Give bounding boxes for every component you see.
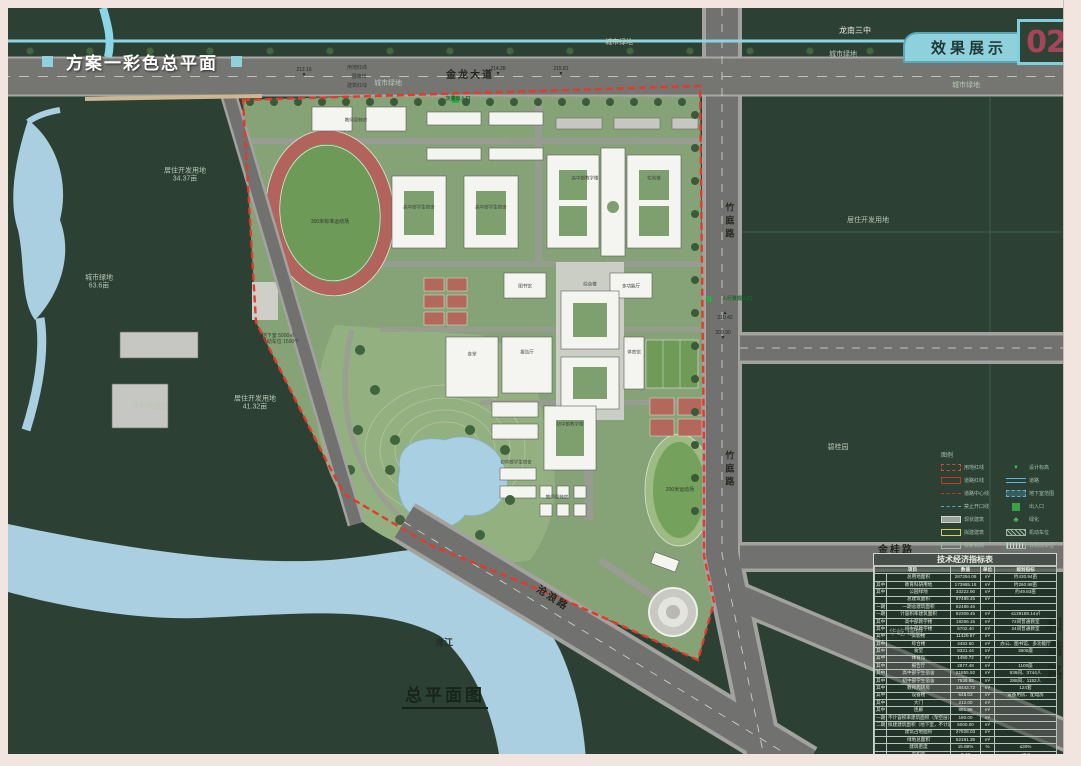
table-row: 其中初中部教学楼6702.40m²24间普通教室	[875, 626, 1057, 633]
legend-proposed-building-swatch-icon	[941, 529, 961, 536]
indicators-table-grid: 项目数值单位规划指标总用地面积287294.08m²约430.94亩其中教育科研…	[874, 566, 1057, 766]
legend-road: 道路	[1006, 474, 1065, 487]
legend-car-parking-swatch-icon	[1006, 529, 1026, 536]
legend-road-centerline-swatch-icon	[941, 493, 961, 494]
legend-basement-extent: 地下室范围	[1006, 487, 1065, 500]
legend-basement-extent-swatch-icon	[1006, 490, 1026, 497]
legend-existing-elevation-label: 现状标高	[964, 542, 984, 549]
pedestrian-entrance-marker	[706, 296, 712, 302]
table-row: 其中高中部学生宿舍21855.92m²936间、3744人	[875, 670, 1057, 677]
frame-top	[0, 0, 1081, 8]
legend-no-opening-line-swatch-icon	[941, 506, 961, 507]
frame-left	[0, 0, 8, 766]
table-row: 建筑密度15.88%%≤30%	[875, 744, 1057, 751]
table-row: 其中设备楼548.03m²设备用房、配电房	[875, 692, 1057, 699]
legend-design-elevation-label: 设计标高	[1029, 464, 1049, 471]
table-row: 其中连廊861.98m²	[875, 707, 1057, 714]
entrance-plaza	[649, 588, 697, 636]
legend-existing-building: 现状建筑	[941, 513, 1000, 526]
indicators-table-title: 技术经济指标表	[874, 554, 1056, 566]
sheet-title-bar: 方案一彩色总平面	[42, 49, 242, 74]
effect-display-tab: 效果展示	[903, 32, 1033, 63]
frame-right	[1063, 0, 1081, 766]
table-row: 一期不计容积率建筑面积（架空层）180.00m²	[875, 714, 1057, 721]
table-row: 其中教师周转房18443.72m²124套	[875, 685, 1057, 692]
table-row: 其中大门212.00m²	[875, 700, 1057, 707]
legend-road-label: 道路	[1029, 477, 1039, 484]
table-row: 一期计容积率建筑面积82309.45m²≤139188.14㎡	[875, 611, 1057, 618]
legend-proposed-building: 拟建建筑	[941, 526, 1000, 539]
legend-entrance: 出入口	[1006, 500, 1065, 513]
table-row: 其中公园绿地33222.90m²约49.83亩	[875, 589, 1057, 596]
plan-caption: 总平面图	[402, 681, 488, 709]
table-row: 建筑占地面积27628.03m²	[875, 729, 1057, 736]
legend-greening-swatch-icon	[1006, 516, 1026, 523]
legend-road-swatch-icon	[1006, 478, 1026, 483]
spine-garden	[607, 201, 619, 213]
legend-existing-building-swatch-icon	[941, 516, 961, 523]
legend-column-right: 设计标高道路地下室范围出入口绿化机动车位非机动车位	[1006, 461, 1065, 552]
indicators-table: 技术经济指标表 项目数值单位规划指标总用地面积287294.08m²约430.9…	[873, 553, 1057, 766]
table-row: 其中综合楼4482.60m²办公、图书馆、多功能厅	[875, 640, 1057, 647]
legend-existing-elevation: 现状标高	[941, 539, 1000, 552]
tab-label: 效果展示	[931, 37, 1007, 58]
legend-site-redline-swatch-icon	[941, 464, 961, 471]
legend-entrance-label: 出入口	[1029, 503, 1044, 510]
table-row: 其中教育科研用地173985.18m²约260.98亩	[875, 581, 1057, 588]
table-row: 其中体育馆1450.72m²	[875, 655, 1057, 662]
table-row: 总用地面积287294.08m²约430.94亩	[875, 574, 1057, 581]
legend-road-redline-swatch-icon	[941, 477, 961, 484]
legend-site-redline-label: 用地红线	[964, 464, 984, 471]
legend-existing-elevation-swatch-icon	[941, 542, 961, 549]
legend: 图例 用地红线道路红线道路中心线禁止开口线现状建筑拟建建筑现状标高 设计标高道路…	[941, 450, 1065, 552]
legend-no-opening-line: 禁止开口线	[941, 500, 1000, 513]
legend-road-redline: 道路红线	[941, 474, 1000, 487]
legend-bike-parking-swatch-icon	[1006, 542, 1026, 549]
master-plan-sheet: 方案一彩色总平面 效果展示 02 总平面图 图例 用地红线道路红线道路中心线禁止…	[0, 0, 1081, 766]
table-row: 其中实验楼11429.87m²	[875, 633, 1057, 640]
table-row: 其中食堂8321.44m²3600座	[875, 648, 1057, 655]
legend-car-parking: 机动车位	[1006, 526, 1065, 539]
legend-proposed-building-label: 拟建建筑	[964, 529, 984, 536]
table-row: 其中初中部学生宿舍7936.92m²288间、1152人	[875, 677, 1057, 684]
table-row: 其中高中部教学楼18266.15m²72间普通教室	[875, 618, 1057, 625]
legend-column-left: 用地红线道路红线道路中心线禁止开口线现状建筑拟建建筑现状标高	[941, 461, 1000, 552]
legend-car-parking-label: 机动车位	[1029, 529, 1049, 536]
page-number: 02	[1026, 25, 1066, 60]
legend-title: 图例	[941, 450, 1065, 459]
legend-bike-parking-label: 非机动车位	[1029, 542, 1054, 549]
legend-road-centerline-label: 道路中心线	[964, 490, 989, 497]
table-row: 其中报告厅2877.48m²1100座	[875, 663, 1057, 670]
legend-road-redline-label: 道路红线	[964, 477, 984, 484]
legend-site-redline: 用地红线	[941, 461, 1000, 474]
legend-existing-building-label: 现状建筑	[964, 516, 984, 523]
legend-greening-label: 绿化	[1029, 516, 1039, 523]
table-header-row: 项目数值单位规划指标	[875, 567, 1057, 574]
secondary-entrance-marker	[452, 96, 459, 103]
table-row: 绿地总面积52191.35m²	[875, 736, 1057, 743]
legend-basement-extent-label: 地下室范围	[1029, 490, 1054, 497]
legend-greening: 绿化	[1006, 513, 1065, 526]
legend-entrance-swatch-icon	[1012, 503, 1020, 511]
title-square-left	[42, 56, 53, 67]
legend-design-elevation-swatch-icon	[1006, 464, 1026, 471]
table-row: 一期一期总建筑面积82489.45	[875, 603, 1057, 610]
sheet-title: 方案一彩色总平面	[66, 49, 218, 74]
title-square-right	[231, 56, 242, 67]
frame-bottom	[0, 754, 1081, 766]
table-row: 二期拟建建筑面积（地下室，不计容）5000.00m²	[875, 722, 1057, 729]
legend-road-centerline: 道路中心线	[941, 487, 1000, 500]
courts-green	[646, 340, 698, 388]
legend-bike-parking: 非机动车位	[1006, 539, 1065, 552]
legend-no-opening-line-label: 禁止开口线	[964, 503, 989, 510]
legend-design-elevation: 设计标高	[1006, 461, 1065, 474]
table-row: 总建筑面积87499.45m²	[875, 596, 1057, 603]
